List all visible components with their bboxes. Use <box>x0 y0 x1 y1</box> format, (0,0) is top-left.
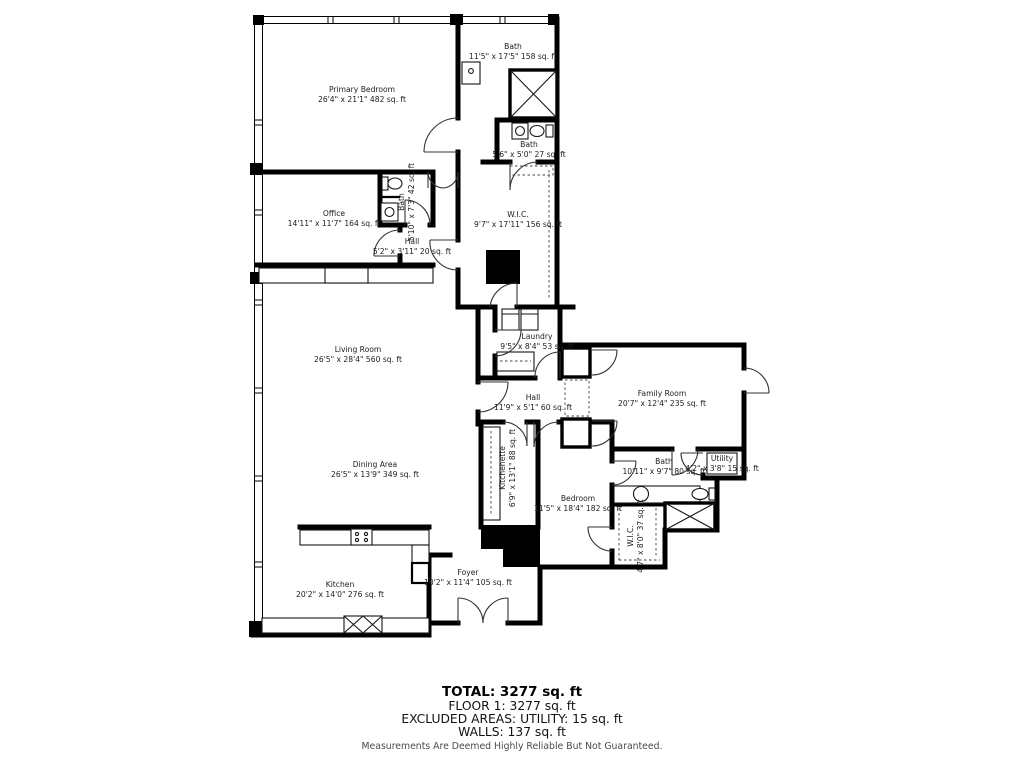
room-dims-primary-bedroom: 26'4" x 21'1" 482 sq. ft <box>318 95 406 104</box>
room-label-living-room: Living Room <box>335 345 382 354</box>
room-dims-laundry: 9'5" x 8'4" 53 sq. ft <box>500 342 573 351</box>
room-dims-family-room: 20'7" x 12'4" 235 sq. ft <box>618 399 706 408</box>
shower-icon <box>665 503 715 530</box>
vanity-sink-icon <box>614 486 700 503</box>
kitchen-island <box>300 529 429 545</box>
room-dims-bedroom: 11'5" x 18'4" 182 sq. ft <box>534 504 622 513</box>
summary-walls: WALLS: 137 sq. ft <box>458 725 566 739</box>
family-closet-lower <box>562 419 590 447</box>
room-label-hall-main: Hall <box>526 393 541 402</box>
summary-block: TOTAL: 3277 sq. ft FLOOR 1: 3277 sq. ft … <box>362 684 663 752</box>
room-label-wic-primary: W.I.C. <box>507 210 528 219</box>
room-dims-living-room: 26'5" x 28'4" 560 sq. ft <box>314 355 402 364</box>
family-closet-upper <box>562 348 590 377</box>
summary-total: TOTAL: 3277 sq. ft <box>442 684 583 700</box>
room-label-kitchenette: Kitchenette <box>498 446 507 490</box>
room-label-family-room: Family Room <box>638 389 686 398</box>
room-label-wic-bedroom: W.I.C. <box>626 525 635 546</box>
room-label-office: Office <box>323 209 345 218</box>
room-dims-hall-small: 5'2" x 3'11" 20 sq. ft <box>373 247 451 256</box>
washer-dryer-icon <box>502 309 538 330</box>
room-dims-dining-area: 26'5" x 13'9" 349 sq. ft <box>331 470 419 479</box>
toilet-icon <box>382 177 402 190</box>
room-label-laundry: Laundry <box>522 332 553 341</box>
sink-icon <box>512 123 528 139</box>
room-label-bath-small: Bath <box>520 140 538 149</box>
room-dims-bath-primary: 11'5" x 17'5" 158 sq. ft <box>469 52 557 61</box>
room-label-hall-small: Hall <box>405 237 420 246</box>
room-label-bath-primary: Bath <box>504 42 522 51</box>
room-dims-wic-bedroom: 4'7" x 8'0" 37 sq. ft <box>636 499 645 572</box>
room-label-kitchen: Kitchen <box>326 580 355 589</box>
toilet-icon <box>692 488 715 500</box>
summary-disclaimer: Measurements Are Deemed Highly Reliable … <box>362 741 663 752</box>
room-label-bedroom: Bedroom <box>561 494 595 503</box>
summary-floor1: FLOOR 1: 3277 sq. ft <box>448 699 576 713</box>
room-dims-kitchen: 20'2" x 14'0" 276 sq. ft <box>296 590 384 599</box>
room-dims-hall-main: 11'9" x 5'1" 60 sq. ft <box>494 403 572 412</box>
shower-icon <box>510 70 557 118</box>
structural-column-foyer <box>481 525 540 567</box>
entry-door <box>458 598 508 623</box>
room-label-primary-bedroom: Primary Bedroom <box>329 85 395 94</box>
room-dims-utility: 4'2" x 3'8" 15 sq. ft <box>685 464 758 473</box>
sink-icon <box>381 203 398 221</box>
room-label-bath-office: Bath <box>397 193 406 211</box>
vanity-sink-icon <box>462 62 480 84</box>
toilet-icon <box>530 125 553 137</box>
room-dims-bath-small: 5'6" x 5'0" 27 sq. ft <box>492 150 565 159</box>
range-icon <box>344 616 382 633</box>
room-dims-office: 14'11" x 11'7" 164 sq. ft <box>288 219 381 228</box>
room-label-dining-area: Dining Area <box>353 460 397 469</box>
hatched-chase <box>259 268 433 283</box>
room-dims-wic-primary: 9'7" x 17'11" 156 sq. ft <box>474 220 562 229</box>
room-label-utility: Utility <box>711 454 734 463</box>
room-dims-bath-office: 5'10" x 7'3" 42 sq. ft <box>407 163 416 241</box>
fireplace-column <box>486 250 520 284</box>
floor-plan-page: Primary Bedroom 26'4" x 21'1" 482 sq. ft… <box>0 0 1024 768</box>
room-dims-foyer: 10'2" x 11'4" 105 sq. ft <box>424 578 512 587</box>
room-label-bath-bedroom: Bath <box>655 457 673 466</box>
floor-plan-drawing: Primary Bedroom 26'4" x 21'1" 482 sq. ft… <box>0 0 1024 768</box>
room-dims-kitchenette: 6'9" x 13'1" 88 sq. ft <box>508 429 517 507</box>
summary-excluded-areas: EXCLUDED AREAS: UTILITY: 15 sq. ft <box>401 712 622 726</box>
room-label-foyer: Foyer <box>457 568 479 577</box>
